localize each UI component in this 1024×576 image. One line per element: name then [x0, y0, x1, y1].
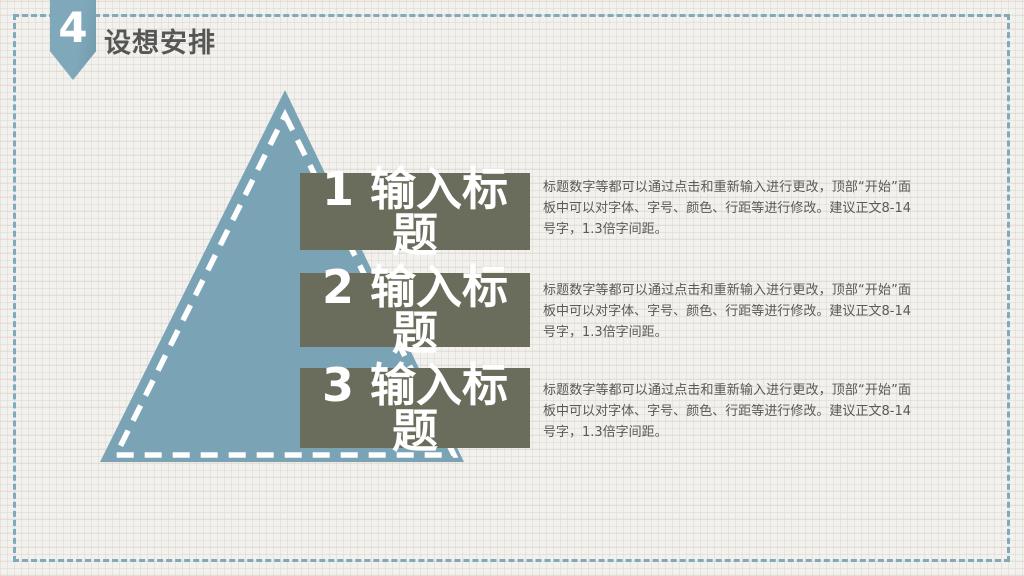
- slide-title: 设想安排: [104, 21, 216, 60]
- step-title-2: 2 输入标 题: [322, 264, 508, 356]
- step-title-3: 3 输入标 题: [322, 362, 508, 454]
- step-description-3: 标题数字等都可以通过点击和重新输入进行更改，顶部“开始”面板中可以对字体、字号、…: [543, 380, 911, 443]
- step-bar-3: 3 输入标 题: [300, 368, 530, 448]
- step-bar-1: 1 输入标 题: [300, 173, 530, 250]
- chapter-number: 4: [58, 0, 87, 56]
- slide-canvas: 4 设想安排 1 输入标 题 标题数字等都可以通过点击和重新输入进行更改，顶部“…: [0, 0, 1024, 576]
- step-description-1: 标题数字等都可以通过点击和重新输入进行更改，顶部“开始”面板中可以对字体、字号、…: [543, 177, 911, 240]
- step-bar-2: 2 输入标 题: [300, 273, 530, 347]
- step-description-2: 标题数字等都可以通过点击和重新输入进行更改，顶部“开始”面板中可以对字体、字号、…: [543, 280, 911, 343]
- step-title-1: 1 输入标 题: [322, 166, 508, 258]
